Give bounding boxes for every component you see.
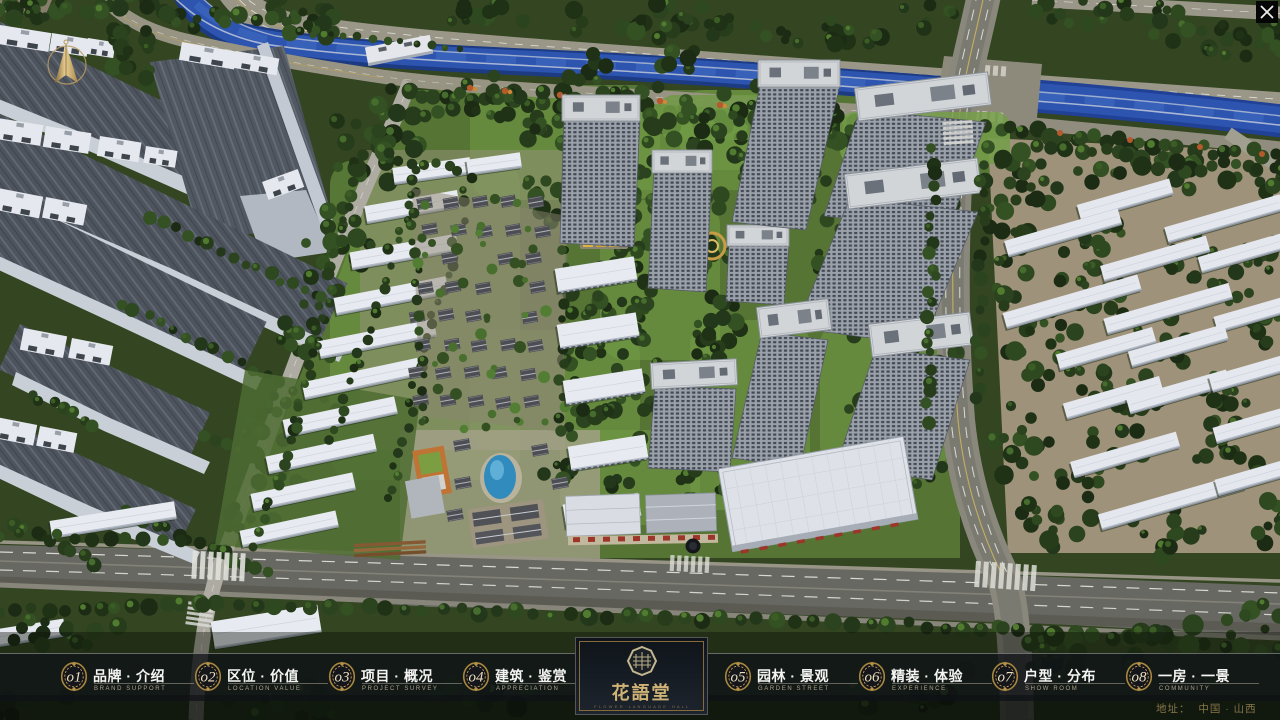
svg-text:o8: o8: [1132, 670, 1148, 686]
svg-text:o6: o6: [865, 670, 881, 686]
svg-text:o3: o3: [335, 670, 350, 686]
svg-text:o4: o4: [469, 670, 485, 686]
svg-text:o5: o5: [731, 670, 747, 686]
svg-text:o1: o1: [67, 670, 82, 686]
svg-text:o2: o2: [201, 670, 217, 686]
svg-text:o7: o7: [998, 670, 1015, 686]
